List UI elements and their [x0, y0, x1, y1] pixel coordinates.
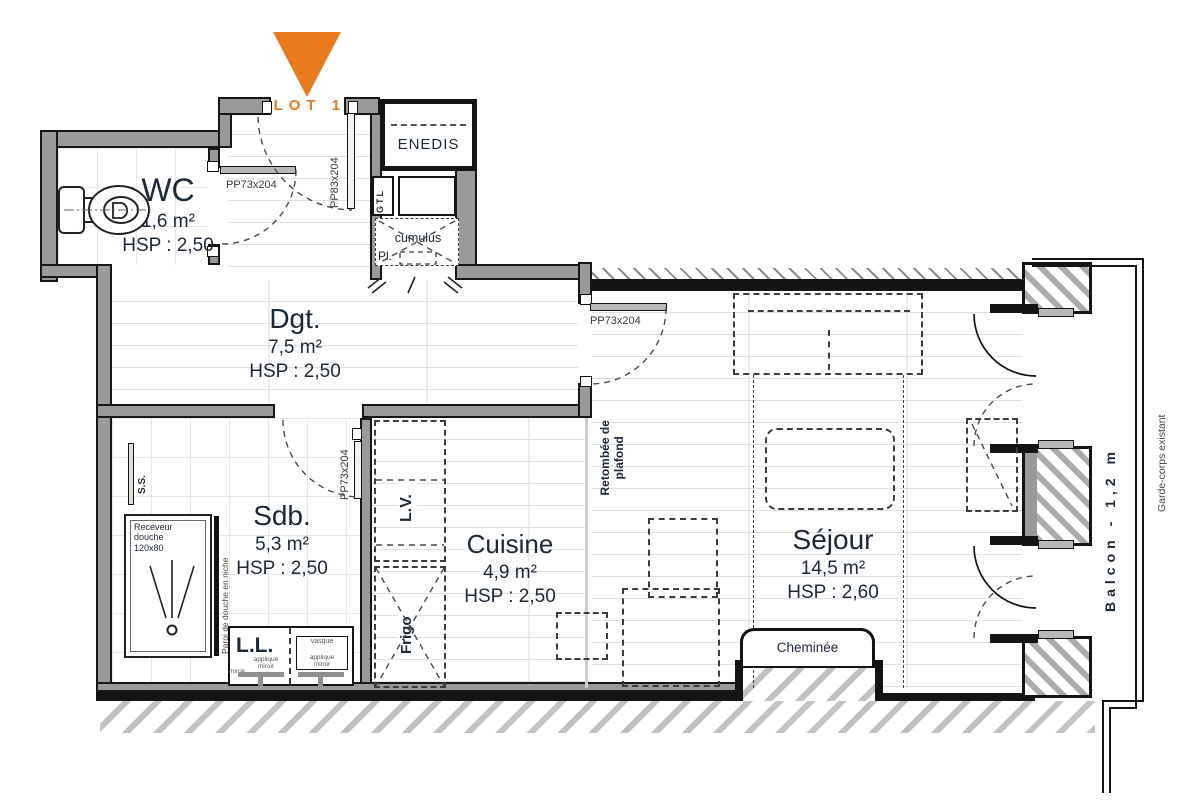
existing-structure-chimney [743, 668, 875, 701]
cumulus-label: cumulus [381, 231, 455, 245]
wall-bottom-edge [96, 692, 742, 701]
fd-stub [990, 536, 1038, 545]
room-name: Dgt. [230, 303, 360, 335]
existing-structure-band [100, 701, 1095, 733]
sdb-door-label: PP73x204 [339, 420, 352, 500]
wall-dgt-bottom-b [362, 404, 590, 418]
french-door-leaf [1038, 540, 1074, 549]
door-jamb [207, 161, 219, 172]
room-area: 7,5 m² [230, 337, 360, 359]
placard-label: Pl. [378, 250, 392, 264]
room-label-cuisine: Cuisine 4,9 m² HSP : 2,50 [445, 530, 575, 608]
ceiling-drop-line [903, 375, 904, 688]
ceiling-drop-label: Retombée de plafond [599, 403, 627, 513]
railing-label: Garde-corps existant [1156, 382, 1168, 512]
shower-screen [214, 516, 219, 656]
enedis-dashed-shelf [391, 124, 466, 126]
fd-stub [990, 634, 1038, 643]
entrance-arrow-icon [273, 32, 341, 97]
wc-door-label: PP73x204 [226, 179, 277, 192]
wall-sejour-top [585, 279, 1035, 291]
fd-stub [990, 304, 1038, 313]
door-jamb [352, 428, 362, 440]
door-jamb [580, 376, 592, 387]
room-name: Séjour [768, 524, 898, 556]
wall-existing-bottom [1022, 636, 1092, 698]
french-door-leaf [1038, 440, 1074, 449]
mirror-leg [318, 677, 323, 686]
wall-sejour-left-b [578, 383, 592, 418]
shower-tray-label: Receveur douche 120x80 [134, 522, 173, 553]
towel-dryer [128, 443, 134, 505]
sdb-door-leaf [354, 441, 362, 499]
room-name: Cuisine [445, 530, 575, 560]
wall-chimney-right [875, 660, 883, 702]
enedis-label: ENEDIS [382, 136, 475, 153]
french-door-leaf [1038, 308, 1074, 317]
basin-label: vasque [298, 638, 346, 646]
wall-wc-top [40, 130, 228, 148]
counter-divider [828, 330, 830, 370]
fridge-label: Frigo [398, 600, 415, 654]
vanity-divider [289, 628, 291, 684]
room-area: 1,6 m² [103, 211, 233, 233]
armchair-dashed [966, 418, 1018, 512]
entry-door-label: PP83x204 [329, 122, 342, 208]
room-area: 5,3 m² [217, 534, 347, 556]
room-hsp: HSP : 2,50 [445, 586, 575, 608]
gtl-side-box [398, 176, 456, 216]
door-jamb [262, 101, 272, 114]
washing-machine-label: L.L. [236, 634, 273, 658]
floor-plan: LOT 13 ENEDIS GTL cumulus Pl. PP83x204 [0, 0, 1186, 800]
room-label-wc: WC 1,6 m² HSP : 2,50 [103, 172, 233, 256]
mirror-light-label: applique miroir [246, 656, 286, 671]
mirror-leg [258, 677, 263, 686]
gtl-label: GTL [375, 179, 385, 213]
furniture-dashed [622, 588, 720, 687]
wall-sdb-left [96, 264, 112, 698]
table-dashed [765, 428, 895, 510]
entry-door-leaf [347, 113, 355, 209]
mirror-light-label: applique miroir [302, 654, 342, 669]
enedis-closet [380, 99, 477, 171]
room-area: 4,9 m² [445, 562, 575, 584]
furniture-dashed [648, 518, 718, 598]
room-name: WC [103, 172, 233, 209]
wall-dgt-bottom-a [96, 404, 275, 418]
room-hsp: HSP : 2,50 [103, 235, 233, 257]
balcony-label: Balcon - 1,2 m [1102, 252, 1118, 612]
wall-existing-mid-band [1025, 449, 1037, 543]
fireplace-label: Cheminée [742, 640, 873, 656]
room-hsp: HSP : 2,50 [217, 558, 347, 580]
room-label-sejour: Séjour 14,5 m² HSP : 2,60 [768, 524, 898, 604]
counter-inner-line [748, 310, 910, 312]
room-name: Sdb. [217, 500, 347, 532]
sejour-door-label: PP73x204 [590, 315, 641, 328]
wall-left [40, 130, 58, 282]
dishwasher-label: L.V. [398, 462, 416, 522]
room-hsp: HSP : 2,50 [230, 361, 360, 383]
room-label-sdb: Sdb. 5,3 m² HSP : 2,50 [217, 500, 347, 580]
wall-dgt-top-right [455, 264, 592, 280]
room-area: 14,5 m² [768, 558, 898, 580]
sejour-door-leaf [590, 303, 667, 311]
room-label-dgt: Dgt. 7,5 m² HSP : 2,50 [230, 303, 360, 383]
towel-dryer-label: S.S. [137, 458, 149, 494]
french-door-leaf [1038, 630, 1074, 639]
room-hsp: HSP : 2,60 [768, 582, 898, 604]
furniture-dashed [556, 612, 608, 660]
